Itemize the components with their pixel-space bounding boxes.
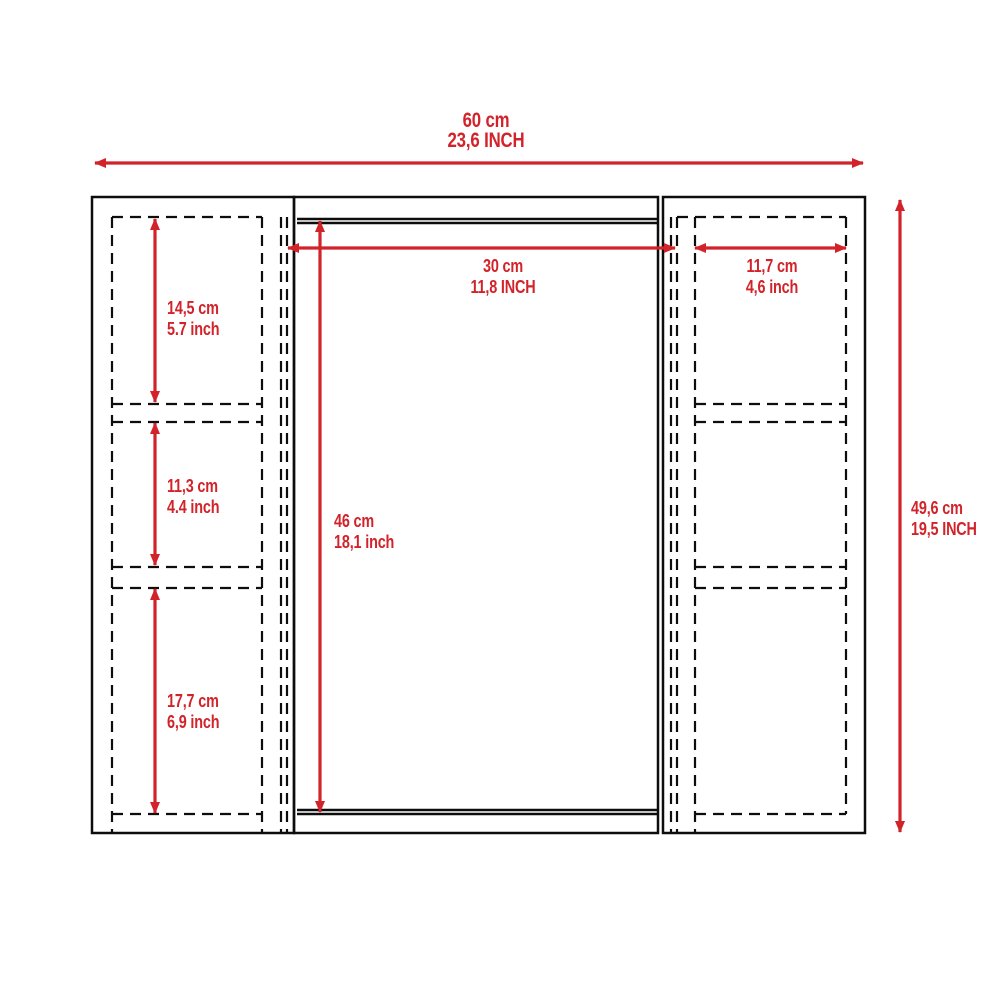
diagram-canvas: 60 cm 23,6 INCH 49,6 cm 19,5 INCH 30 cm … — [0, 0, 1000, 1000]
left-shelf-middle-dimension-label: 11,3 cm 4.4 inch — [167, 476, 219, 517]
mirror-height-dimension-label: 46 cm 18,1 inch — [334, 511, 394, 552]
overall-height-inch-value: 19,5 INCH — [911, 519, 977, 540]
overall-height-cm-value: 49,6 cm — [911, 498, 977, 519]
overall-width-dimension-label: 60 cm 23,6 INCH — [448, 111, 525, 151]
mirror-height-cm-value: 46 cm — [334, 511, 394, 532]
left-shelf-top-cm-value: 14,5 cm — [167, 298, 219, 319]
side-shelf-width-inch-value: 4,6 inch — [746, 277, 798, 298]
left-shelf-top-inch-value: 5.7 inch — [167, 319, 219, 340]
side-shelf-width-dimension-label: 11,7 cm 4,6 inch — [746, 256, 798, 297]
left-shelf-middle-cm-value: 11,3 cm — [167, 476, 219, 497]
mirror-width-dimension-label: 30 cm 11,8 INCH — [471, 256, 536, 297]
mirror-width-inch-value: 11,8 INCH — [471, 277, 536, 298]
overall-width-inch-value: 23,6 INCH — [448, 131, 525, 151]
left-shelf-top-dimension-label: 14,5 cm 5.7 inch — [167, 298, 219, 339]
mirror-width-cm-value: 30 cm — [471, 256, 536, 277]
overall-width-cm-value: 60 cm — [448, 111, 525, 131]
left-shelf-bottom-dimension-label: 17,7 cm 6,9 inch — [167, 691, 219, 732]
left-shelf-bottom-cm-value: 17,7 cm — [167, 691, 219, 712]
overall-height-dimension-label: 49,6 cm 19,5 INCH — [911, 498, 977, 539]
left-shelf-bottom-inch-value: 6,9 inch — [167, 712, 219, 733]
left-shelf-middle-inch-value: 4.4 inch — [167, 497, 219, 518]
side-shelf-width-cm-value: 11,7 cm — [746, 256, 798, 277]
hidden-shelf-lines-group — [112, 217, 846, 832]
mirror-height-inch-value: 18,1 inch — [334, 532, 394, 553]
